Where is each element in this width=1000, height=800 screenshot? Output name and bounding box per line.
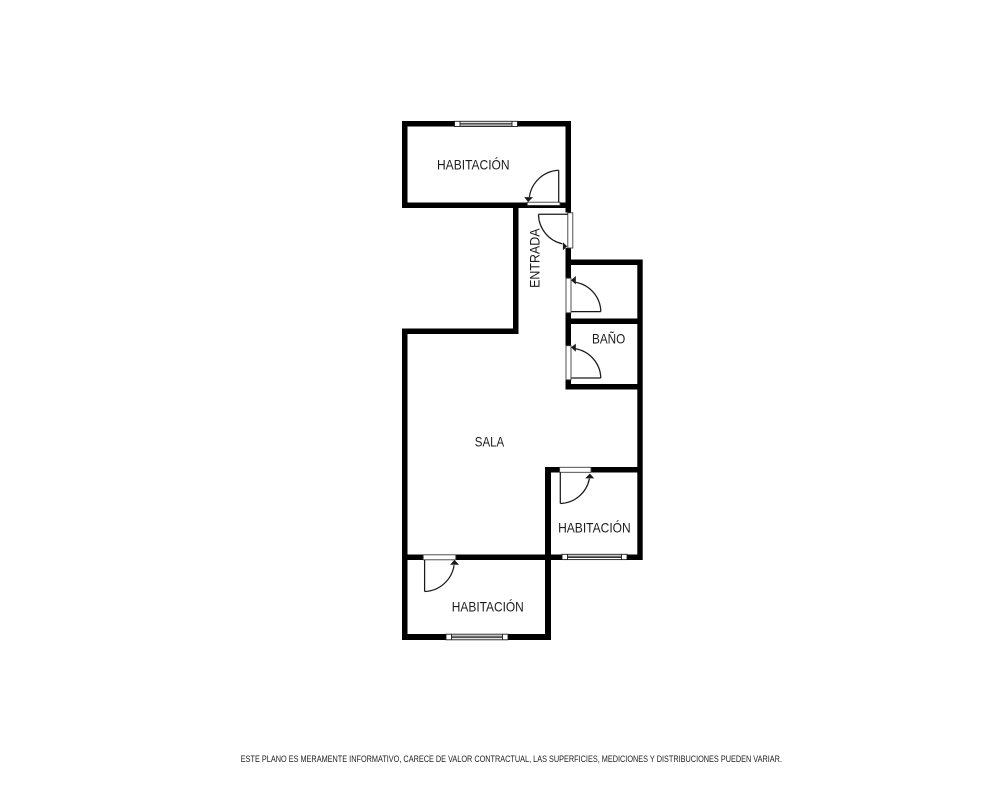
svg-text:HABITACIÓN: HABITACIÓN [452, 600, 524, 615]
svg-text:BAÑO: BAÑO [592, 332, 625, 347]
svg-text:HABITACIÓN: HABITACIÓN [558, 520, 631, 535]
svg-text:ENTRADA: ENTRADA [527, 228, 542, 288]
svg-text:ESTE PLANO ES MERAMENTE INFORM: ESTE PLANO ES MERAMENTE INFORMATIVO, CAR… [241, 754, 782, 764]
svg-text:HABITACIÓN: HABITACIÓN [437, 157, 510, 172]
svg-text:SALA: SALA [475, 435, 505, 450]
